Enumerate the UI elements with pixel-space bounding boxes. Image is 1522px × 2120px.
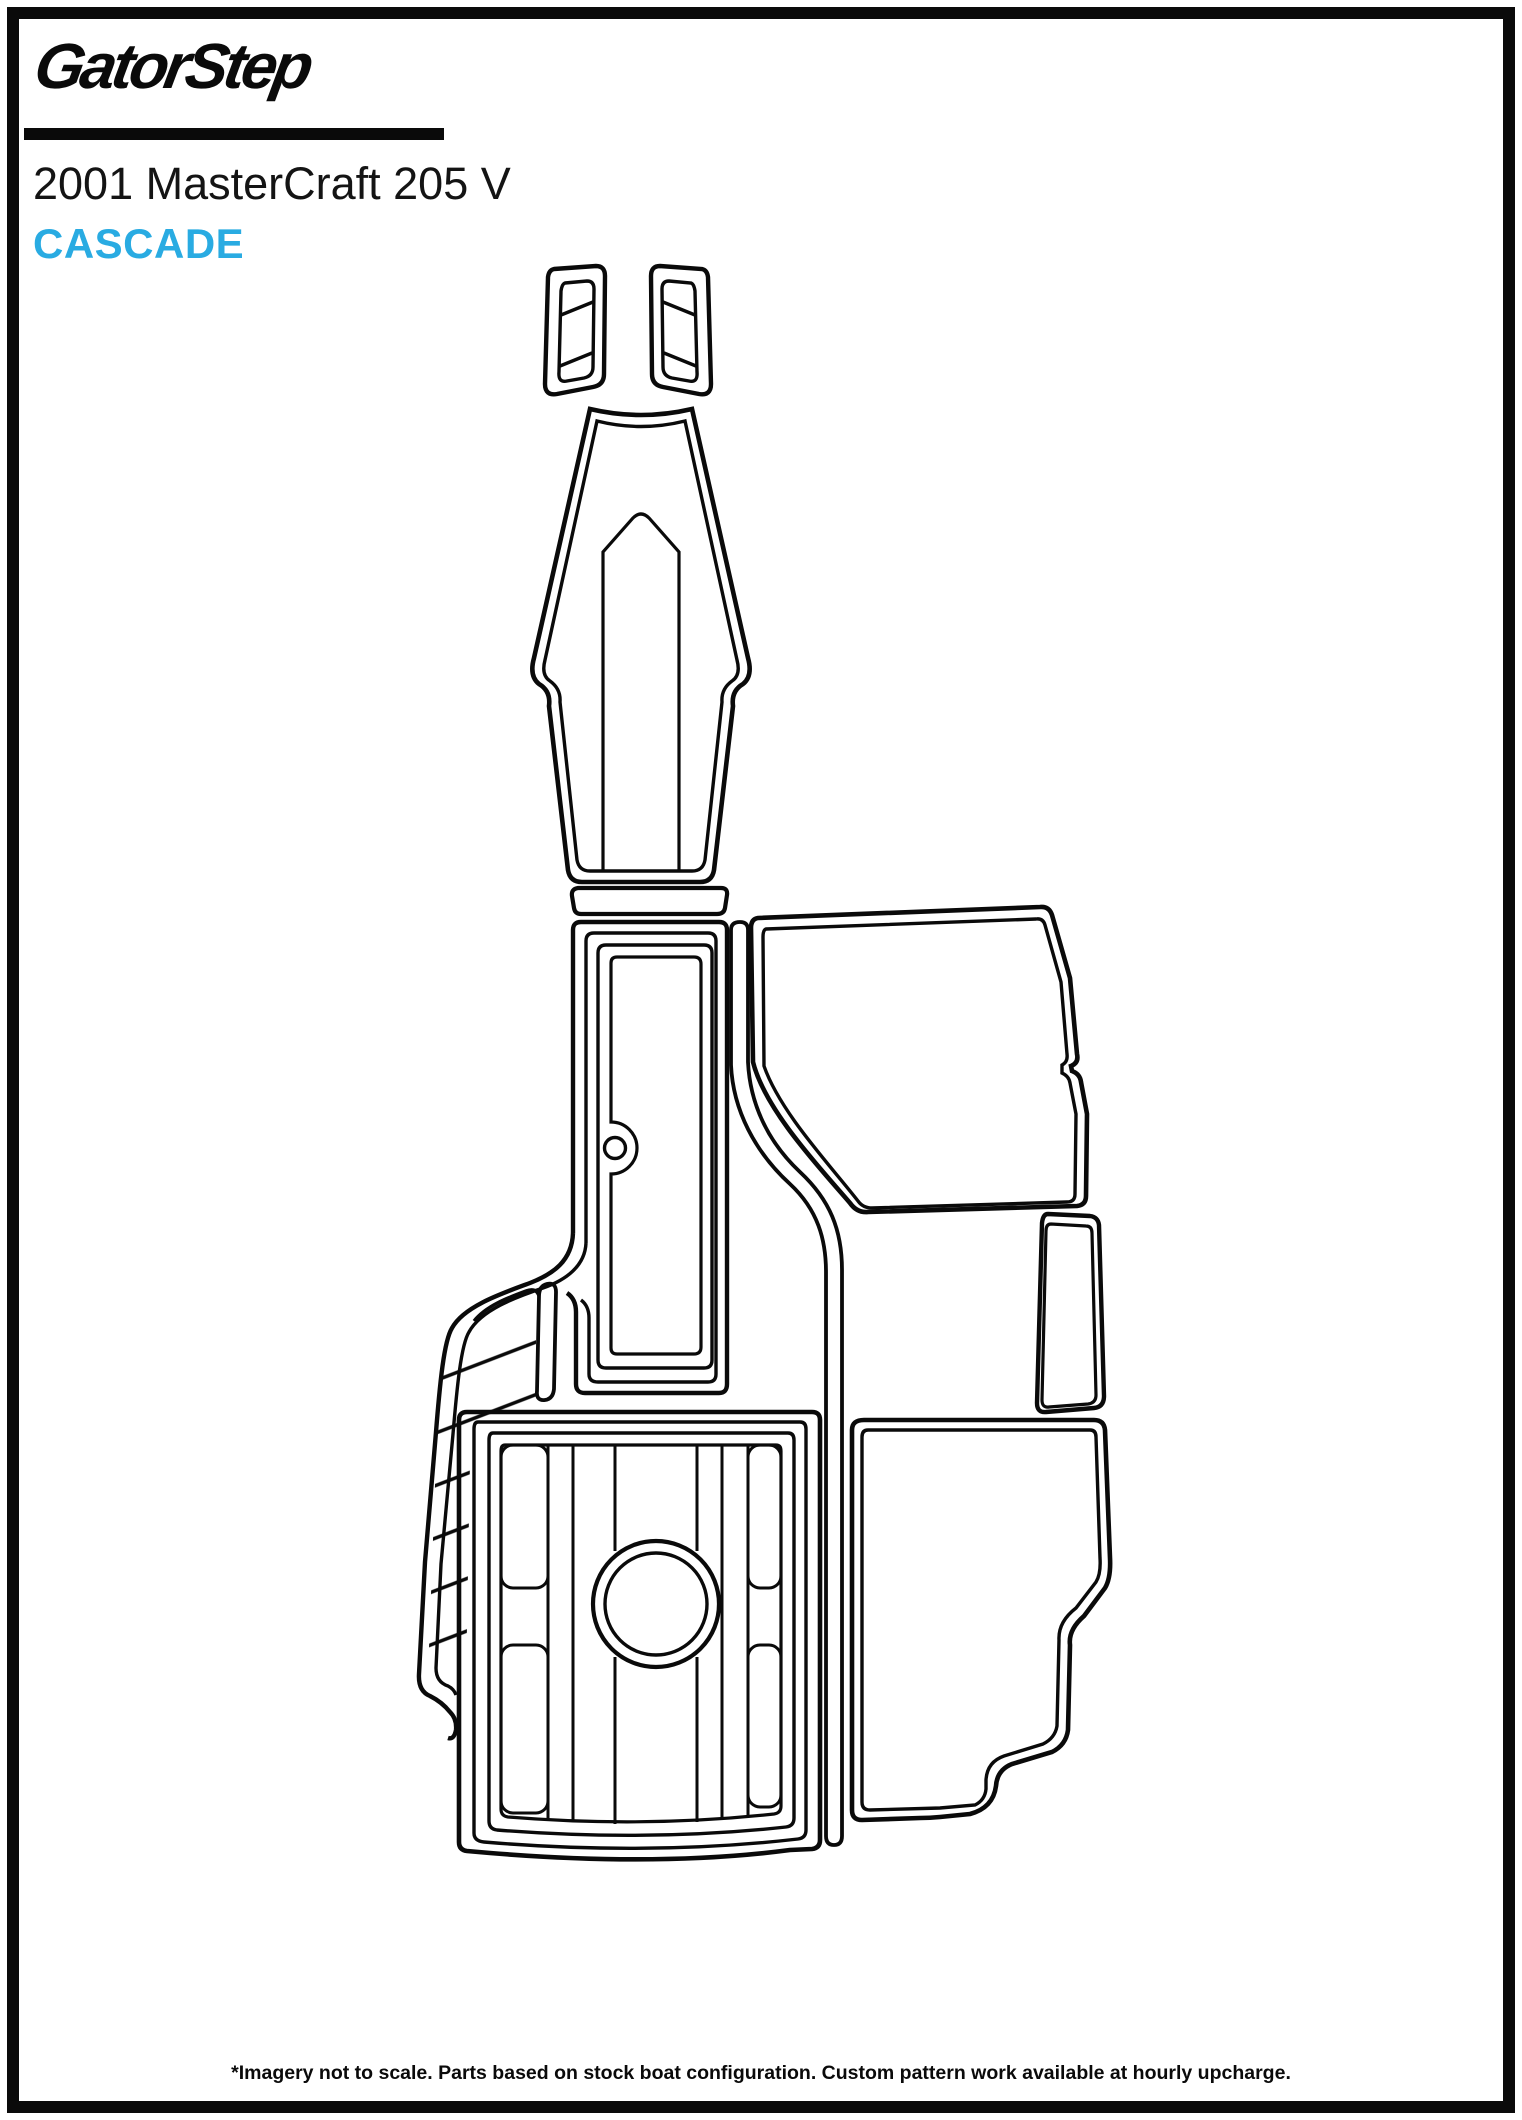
disclaimer-note: *Imagery not to scale. Parts based on st… bbox=[0, 2062, 1522, 2085]
bow-step-pad-right-icon bbox=[651, 266, 711, 394]
bow-walkway-pad-icon bbox=[532, 409, 749, 882]
flooring-template-diagram bbox=[0, 0, 1522, 2120]
cup-holder-cutout-icon bbox=[605, 1138, 626, 1159]
center-aisle-pad-icon bbox=[567, 922, 727, 1393]
side-step-pad-icon bbox=[1037, 1214, 1104, 1412]
pylon-ring-outer-icon bbox=[593, 1541, 719, 1667]
starboard-cockpit-pad-icon bbox=[751, 907, 1087, 1212]
rear-bench-pad-icon bbox=[852, 1420, 1110, 1820]
pylon-ring-inner-icon bbox=[605, 1553, 707, 1655]
engine-hatch-pad-icon bbox=[459, 1412, 820, 1859]
bow-step-pad-left-icon bbox=[545, 266, 605, 394]
step-threshold-strip-icon bbox=[572, 888, 727, 914]
template-sheet: GatorStep 2001 MasterCraft 205 V CASCADE bbox=[0, 0, 1522, 2120]
